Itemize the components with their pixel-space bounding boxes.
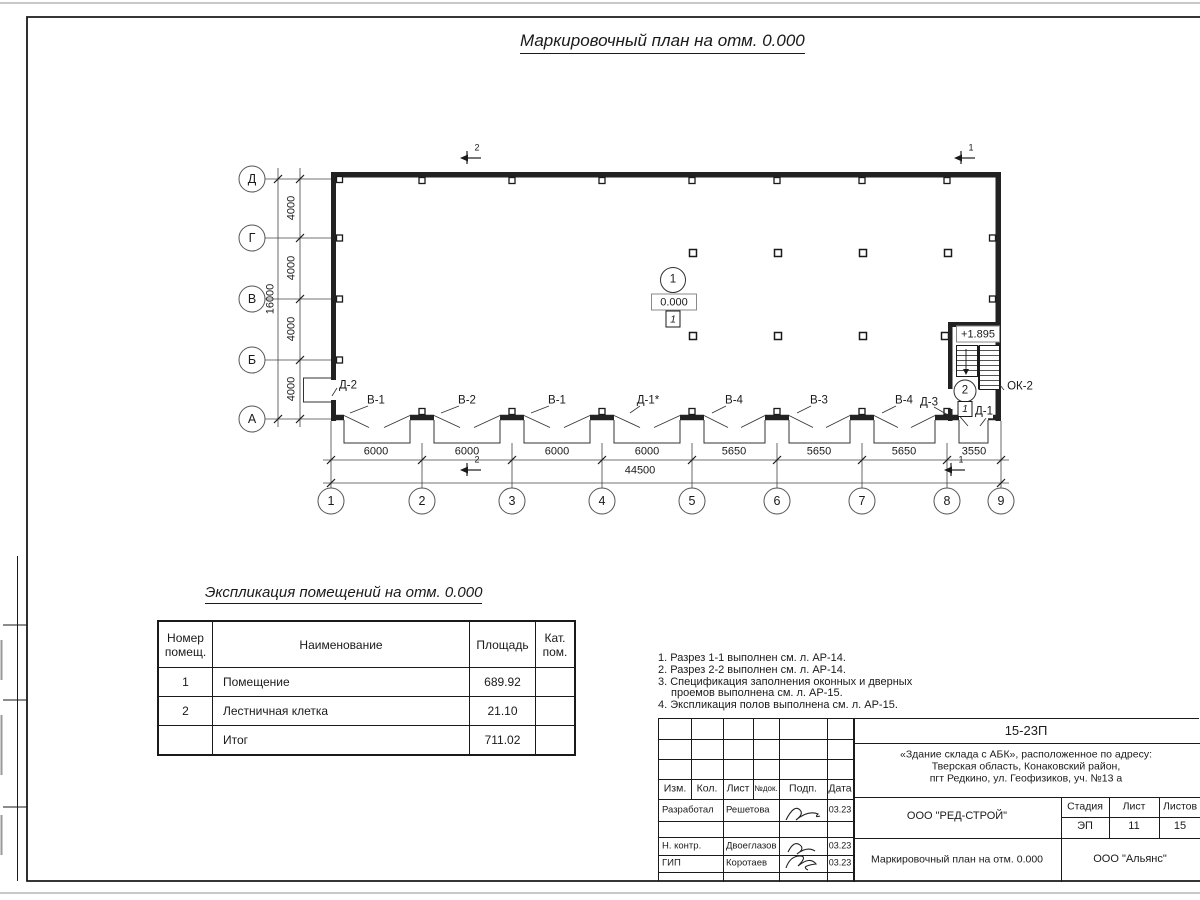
- drawing-title: Маркировочный план на отм. 0.000: [520, 31, 805, 54]
- section-number: 1: [958, 456, 963, 465]
- explication-title: Экспликация помещений на отм. 0.000: [205, 584, 482, 604]
- dim-label: 6000: [545, 447, 569, 458]
- table-row: 2 Лестничная клетка 21.10: [158, 697, 575, 726]
- window-bays: [344, 416, 988, 444]
- dim-label: 5650: [892, 447, 916, 458]
- person-name: Двоеглазов: [726, 841, 777, 852]
- col-header-name: Наименование: [213, 621, 470, 668]
- cell-cat: [536, 668, 576, 697]
- notes-block: 1. Разрез 1-1 выполнен см. л. АР-14. 2. …: [658, 653, 912, 712]
- cell-cat: [536, 697, 576, 726]
- role-label: Н. контр.: [662, 841, 701, 852]
- window-label: В-4: [725, 395, 743, 407]
- col-axis-label: 1: [328, 495, 335, 508]
- col-axis-label: 8: [944, 495, 951, 508]
- doc-number: 15-23П: [1005, 724, 1048, 738]
- cell-name: Помещение: [213, 668, 470, 697]
- sheet-value: 11: [1128, 821, 1139, 833]
- window-ok2: [995, 353, 1003, 387]
- sheets-label: Листов: [1163, 801, 1197, 812]
- note-line: 4. Экспликация полов выполнена см. л. АР…: [658, 700, 912, 712]
- row-axis-label: Д: [248, 173, 256, 186]
- cell-cat: [536, 726, 576, 756]
- explication-table: Номер помещ. Наименование Площадь Кат. п…: [157, 620, 576, 756]
- dim-label: 5650: [722, 447, 746, 458]
- col-header-cat: Кат. пом.: [536, 621, 576, 668]
- section-mark-icons: [460, 151, 975, 476]
- door-label: Д-3: [920, 397, 938, 409]
- dim-label: 6000: [364, 447, 388, 458]
- cell-name: Лестничная клетка: [213, 697, 470, 726]
- col-axis-label: 9: [998, 495, 1005, 508]
- sheet-title: Маркировочный план на отм. 0.000: [871, 854, 1043, 865]
- project-name: «Здание склада с АБК», расположенное по …: [900, 749, 1152, 760]
- table-row: 1 Помещение 689.92: [158, 668, 575, 697]
- stage-label: Стадия: [1067, 801, 1103, 812]
- door-d2-porch: [304, 378, 338, 402]
- window-label: ОК-2: [1007, 381, 1033, 393]
- room-mark-circles: [661, 268, 977, 403]
- drawing-sheet: Маркировочный план на отм. 0.000 Эксплик…: [0, 0, 1200, 900]
- sign-date: 03.23: [829, 805, 852, 814]
- note-line: 2. Разрез 2-2 выполнен см. л. АР-14.: [658, 665, 912, 677]
- col-header-area: Площадь: [470, 621, 536, 668]
- window-label: В-4: [895, 395, 913, 407]
- door-label: Д-2: [339, 380, 357, 392]
- door-label: Д-1*: [637, 395, 660, 407]
- dim-label: 3550: [962, 447, 986, 458]
- level-mark: 0.000: [651, 294, 697, 311]
- dim-label: 4000: [287, 256, 298, 280]
- dim-label: 4000: [287, 196, 298, 220]
- project-address: Тверская область, Конаковский район,: [932, 761, 1121, 772]
- sign-date: 03.23: [829, 858, 852, 867]
- section-number: 2: [474, 144, 479, 153]
- dim-label: 5650: [807, 447, 831, 458]
- door-label: Д-1: [975, 406, 993, 418]
- col-header-num: Номер помещ.: [158, 621, 213, 668]
- role-label: ГИП: [662, 858, 681, 869]
- cell-area: 711.02: [470, 726, 536, 756]
- col-axis-label: 3: [509, 495, 516, 508]
- dim-total-label: 44500: [625, 466, 656, 477]
- role-label: Разработал: [662, 805, 714, 816]
- person-name: Коротаев: [726, 858, 767, 869]
- cell-num: 2: [158, 697, 213, 726]
- sheet-label: Лист: [1123, 801, 1146, 812]
- contractor-company: ООО "Альянс": [1093, 854, 1167, 866]
- sheets-value: 15: [1174, 821, 1186, 833]
- col-ndok: №док.: [754, 785, 777, 793]
- col-data: Дата: [828, 783, 851, 794]
- table-header-row: Номер помещ. Наименование Площадь Кат. п…: [158, 621, 575, 668]
- dim-label: 4000: [287, 317, 298, 341]
- window-label: В-1: [548, 395, 566, 407]
- row-axis-label: В: [248, 293, 256, 306]
- col-list: Лист: [727, 783, 750, 794]
- cell-num: [158, 726, 213, 756]
- col-axis-label: 5: [689, 495, 696, 508]
- col-kol: Кол.: [697, 783, 718, 794]
- title-block: 15-23П «Здание склада с АБК», расположен…: [658, 718, 1199, 881]
- dim-total-label: 16000: [266, 284, 277, 315]
- row-axis-label: А: [248, 413, 256, 426]
- section-number: 1: [968, 144, 973, 153]
- col-axis-label: 4: [599, 495, 606, 508]
- row-axis-label: Г: [249, 232, 256, 245]
- row-axis-label: Б: [248, 354, 256, 367]
- floor-type-mark: 1: [958, 401, 973, 417]
- cell-num: 1: [158, 668, 213, 697]
- col-izm: Изм.: [664, 783, 687, 794]
- table-row: Итог 711.02: [158, 726, 575, 756]
- room-number: 1: [670, 274, 676, 286]
- project-address: пгт Редкино, ул. Геофизиков, уч. №13 а: [930, 773, 1123, 784]
- col-podp: Подп.: [789, 783, 817, 794]
- dim-label: 4000: [287, 377, 298, 401]
- person-name: Решетова: [726, 805, 770, 816]
- cell-area: 689.92: [470, 668, 536, 697]
- level-mark: +1.895: [956, 326, 1000, 343]
- stage-value: ЭП: [1077, 821, 1093, 833]
- design-company: ООО "РЕД-СТРОЙ": [907, 811, 1007, 823]
- floor-type-mark: 1: [666, 311, 681, 328]
- window-label: В-2: [458, 395, 476, 407]
- col-axis-label: 6: [774, 495, 781, 508]
- col-axis-label: 7: [859, 495, 866, 508]
- cell-area: 21.10: [470, 697, 536, 726]
- window-label: В-3: [810, 395, 828, 407]
- dim-label: 6000: [635, 447, 659, 458]
- sign-date: 03.23: [829, 841, 852, 850]
- col-axis-label: 2: [419, 495, 426, 508]
- section-number: 2: [474, 456, 479, 465]
- cell-name: Итог: [213, 726, 470, 756]
- room-number: 2: [962, 385, 968, 397]
- window-label: В-1: [367, 395, 385, 407]
